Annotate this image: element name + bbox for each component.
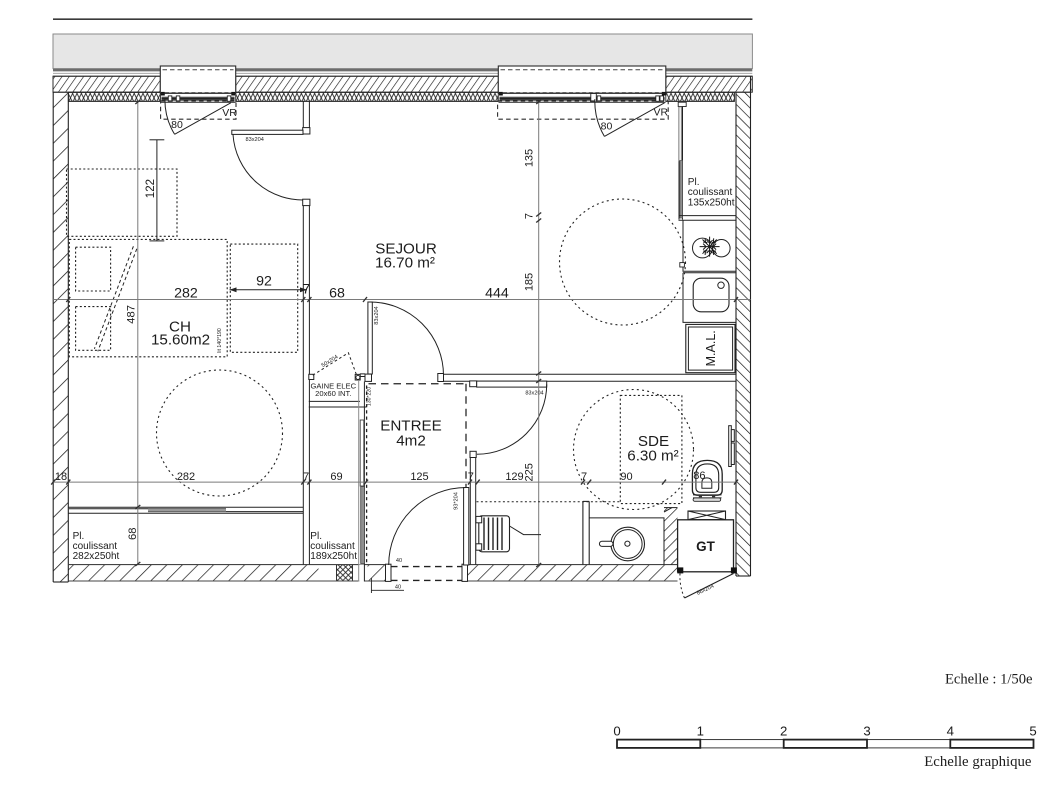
svg-text:185: 185 [523,273,535,291]
svg-text:7: 7 [303,471,309,483]
svg-text:135x250ht: 135x250ht [688,197,735,208]
svg-text:Echelle : 1/50e: Echelle : 1/50e [945,672,1033,688]
svg-text:282: 282 [174,285,198,301]
svg-text:Echelle graphique: Echelle graphique [924,754,1032,770]
svg-text:M.A.L.: M.A.L. [704,330,718,366]
svg-text:5: 5 [1029,724,1036,739]
svg-text:69: 69 [330,471,342,483]
svg-text:0: 0 [613,724,620,739]
svg-text:444: 444 [485,286,509,302]
svg-text:86: 86 [693,470,705,482]
svg-text:90: 90 [620,471,632,483]
svg-text:1: 1 [697,724,704,739]
svg-text:125: 125 [410,471,428,483]
svg-text:18: 18 [55,471,67,483]
svg-text:68: 68 [127,528,139,540]
svg-text:282x250ht: 282x250ht [73,551,120,562]
svg-text:20x60 INT.: 20x60 INT. [315,389,351,398]
svg-text:135: 135 [523,149,535,167]
svg-text:130*220: 130*220 [366,387,372,406]
svg-text:92: 92 [256,273,272,289]
svg-text:40: 40 [395,585,401,591]
svg-text:VR: VR [654,106,669,118]
svg-text:80: 80 [601,121,613,133]
svg-text:83x204: 83x204 [525,391,543,397]
svg-text:GT: GT [696,539,716,554]
svg-text:2: 2 [780,724,787,739]
svg-text:225: 225 [524,463,536,481]
svg-text:VR: VR [222,107,237,119]
svg-text:16.70 m²: 16.70 m² [375,255,435,272]
svg-text:40: 40 [396,558,402,564]
svg-text:6.30 m²: 6.30 m² [627,448,679,465]
svg-text:83x204: 83x204 [246,137,264,143]
svg-text:68: 68 [329,286,345,302]
svg-text:129: 129 [505,471,523,483]
svg-text:7: 7 [581,471,587,483]
svg-text:4: 4 [947,724,954,739]
svg-text:4m2: 4m2 [396,433,426,450]
svg-text:7: 7 [468,471,474,483]
svg-text:15.60m2: 15.60m2 [151,332,210,349]
svg-text:122: 122 [145,179,157,198]
svg-text:189x250ht: 189x250ht [310,551,357,562]
svg-text:7: 7 [523,213,535,219]
svg-text:83x204: 83x204 [374,306,380,324]
svg-text:282: 282 [177,471,195,483]
svg-text:lit 140*190: lit 140*190 [217,328,223,353]
svg-text:487: 487 [126,305,138,324]
svg-text:80: 80 [171,119,183,131]
svg-text:3: 3 [863,724,870,739]
svg-text:93*204: 93*204 [454,492,460,510]
